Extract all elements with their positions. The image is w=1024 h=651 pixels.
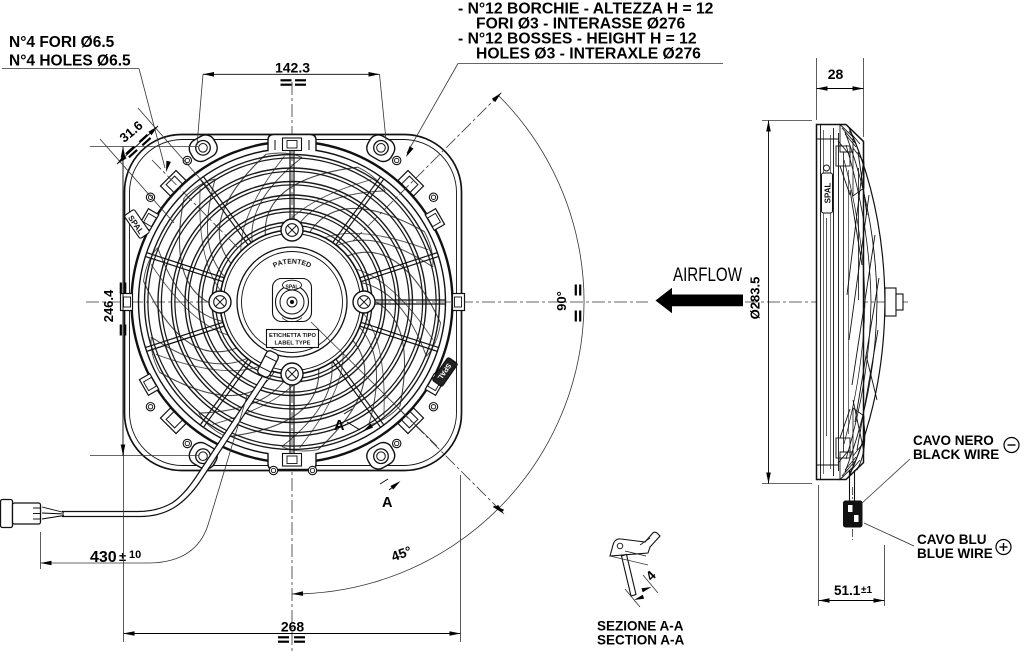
- svg-text:BLACK WIRE: BLACK WIRE: [913, 447, 999, 462]
- svg-text:51.1: 51.1: [834, 583, 861, 598]
- svg-text:SPAL: SPAL: [824, 183, 833, 204]
- svg-text:90°: 90°: [554, 291, 569, 311]
- svg-text:A: A: [382, 495, 393, 511]
- svg-text:CAVO BLU: CAVO BLU: [917, 532, 987, 547]
- svg-text:N°4 FORI Ø6.5: N°4 FORI Ø6.5: [9, 34, 115, 51]
- svg-text:HOLES Ø3 - INTERAXLE Ø276: HOLES Ø3 - INTERAXLE Ø276: [476, 46, 701, 63]
- svg-text:268: 268: [281, 619, 305, 635]
- svg-text:±1: ±1: [861, 585, 872, 596]
- svg-text:Ø283.5: Ø283.5: [748, 277, 763, 320]
- svg-text:SECTION A-A: SECTION A-A: [597, 633, 684, 648]
- svg-text:LABEL TYPE: LABEL TYPE: [275, 341, 311, 347]
- svg-text:430: 430: [90, 549, 117, 566]
- svg-text:BLUE WIRE: BLUE WIRE: [917, 546, 993, 561]
- svg-text:142.3: 142.3: [275, 60, 310, 76]
- svg-text:±: ±: [119, 549, 126, 564]
- svg-text:AIRFLOW: AIRFLOW: [673, 265, 742, 286]
- svg-text:ETICHETTA TIPO: ETICHETTA TIPO: [269, 333, 317, 339]
- svg-text:10: 10: [129, 549, 141, 561]
- svg-text:A: A: [334, 418, 345, 434]
- svg-text:SPAL: SPAL: [286, 285, 299, 291]
- svg-text:28: 28: [828, 66, 844, 82]
- svg-text:SEZIONE A-A: SEZIONE A-A: [597, 619, 684, 634]
- svg-text:CAVO NERO: CAVO NERO: [913, 433, 994, 448]
- svg-text:246.4: 246.4: [101, 289, 116, 322]
- svg-text:N°4 HOLES Ø6.5: N°4 HOLES Ø6.5: [9, 53, 131, 70]
